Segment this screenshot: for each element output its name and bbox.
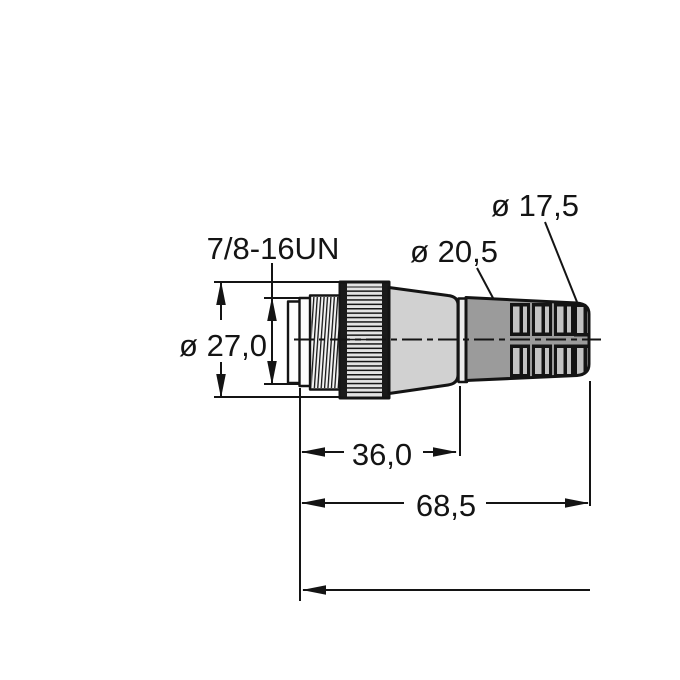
grip-flex-slot-pair: [532, 303, 552, 336]
grip-flex-slot-pair: [510, 345, 530, 378]
body-diameter-label: ø 20,5: [410, 234, 498, 269]
thread-hatch: [312, 297, 340, 388]
leader-dia-17-5: [545, 222, 577, 302]
mating-face: [288, 302, 300, 384]
grip-flex-slot-pair: [532, 345, 552, 378]
overall-length-label: 68,5: [416, 488, 476, 523]
grip-flex-slot-pair: [554, 345, 574, 378]
connector-dimension-drawing: 7/8-16UN ø 27,0 ø 20,5 ø 17,5 36,0 68,5: [0, 0, 680, 680]
grip-flex-slot-pair: [574, 304, 594, 337]
grip-end-diameter-label: ø 17,5: [491, 188, 579, 223]
thread-spec-label: 7/8-16UN: [207, 231, 340, 266]
front-length-label: 36,0: [352, 437, 412, 472]
grip-flex-slot-pair: [510, 303, 530, 336]
technical-drawing-canvas: 7/8-16UN ø 27,0 ø 20,5 ø 17,5 36,0 68,5: [0, 0, 680, 680]
grip-flex-slot-pair: [554, 303, 574, 336]
nut-diameter-label: ø 27,0: [179, 328, 267, 363]
leader-dia-20-5: [477, 268, 493, 298]
thread-section: [310, 296, 341, 390]
